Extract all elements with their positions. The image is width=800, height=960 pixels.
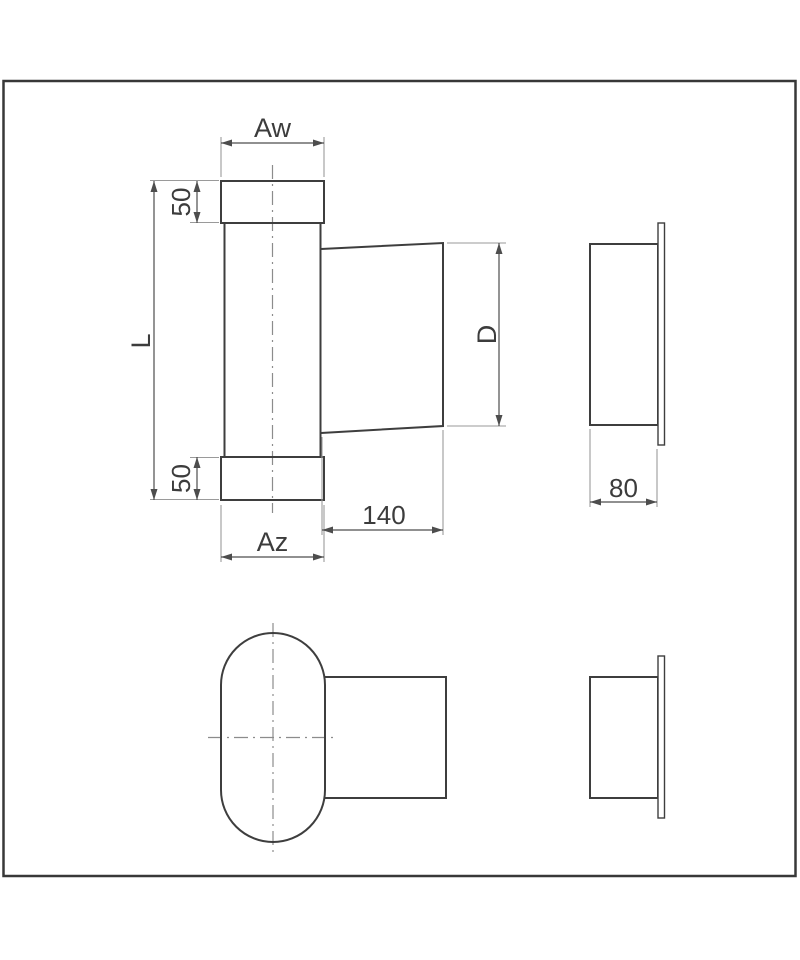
drawing-border	[4, 81, 796, 876]
d80-label: 80	[609, 473, 638, 503]
l-arrow-down	[151, 489, 158, 500]
side-top-flange-plate	[658, 223, 665, 445]
technical-drawing-canvas: Aw 50 L 50	[0, 0, 800, 960]
dimension-bottom-collar-50: 50	[166, 457, 219, 500]
d-arrow-up	[496, 243, 503, 254]
drawing-page: Aw 50 L 50	[0, 0, 800, 960]
side-top-duct	[590, 244, 658, 425]
az-arrow-left	[221, 554, 232, 561]
side-view-top	[590, 223, 665, 445]
branch-outline	[321, 243, 443, 433]
plan-branch-outline	[325, 677, 446, 798]
dimension-az: Az	[221, 505, 324, 562]
d80-arrow-left	[590, 499, 601, 506]
dimension-140: 140	[322, 430, 443, 535]
az-arrow-right	[313, 554, 324, 561]
d-arrow-down	[496, 415, 503, 426]
plan-view	[208, 623, 446, 852]
dimension-l: L	[126, 181, 219, 500]
aw-arrow-left	[221, 140, 232, 147]
l-arrow-up	[151, 181, 158, 192]
front-view	[221, 165, 443, 513]
aw-label: Aw	[254, 113, 292, 143]
aw-arrow-right	[313, 140, 324, 147]
dimension-top-collar-50: 50	[150, 181, 219, 224]
bottom50-label: 50	[166, 464, 196, 493]
d80-arrow-right	[646, 499, 657, 506]
l-label: L	[126, 333, 156, 348]
az-label: Az	[257, 527, 289, 557]
d-label: D	[472, 325, 502, 345]
top50-label: 50	[166, 188, 196, 217]
dimension-80: 80	[590, 429, 657, 507]
side-bottom-flange-plate	[658, 656, 665, 818]
d140-label: 140	[362, 500, 405, 530]
side-bottom-duct	[590, 677, 658, 798]
side-view-bottom	[590, 656, 665, 818]
d140-arrow-right	[432, 527, 443, 534]
dimension-d: D	[447, 243, 506, 426]
